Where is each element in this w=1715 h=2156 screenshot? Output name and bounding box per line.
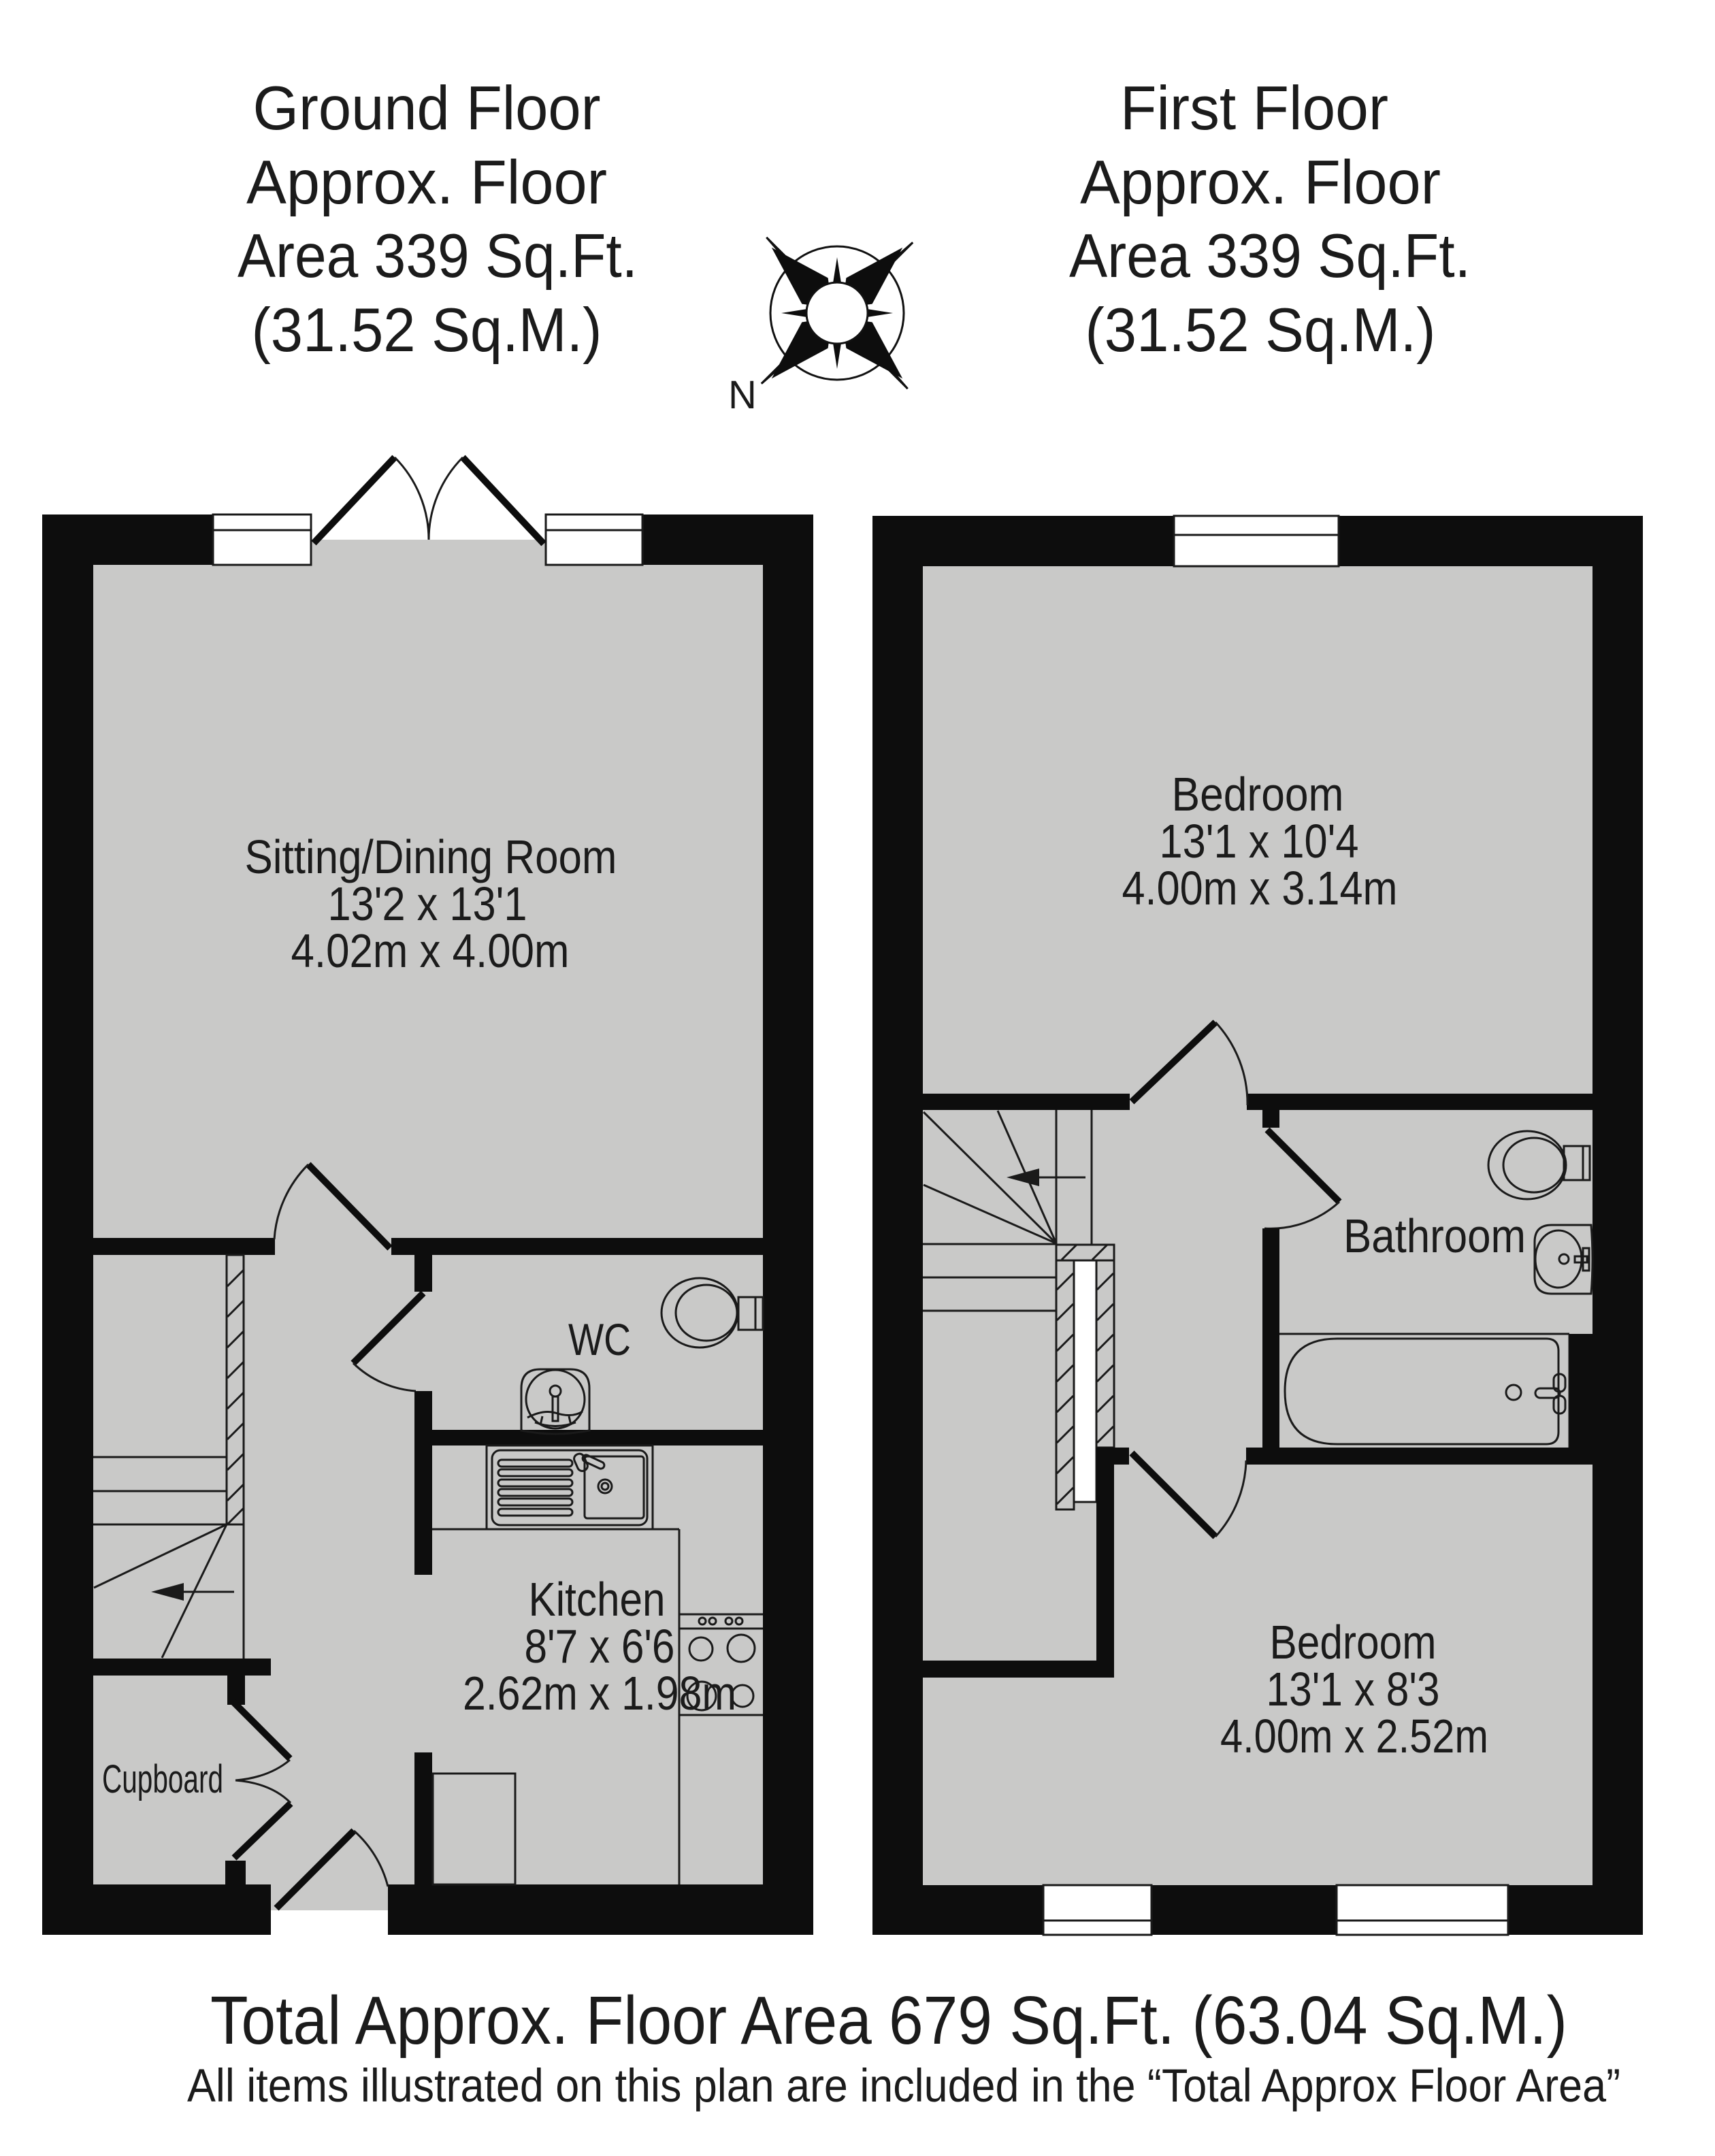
svg-text:Cupboard: Cupboard (102, 1757, 223, 1801)
svg-text:(31.52 Sq.M.): (31.52 Sq.M.) (252, 296, 602, 365)
svg-text:Bathroom: Bathroom (1343, 1209, 1526, 1262)
svg-text:13'1 x 8'3: 13'1 x 8'3 (1267, 1663, 1440, 1716)
svg-text:Area 339 Sq.Ft.: Area 339 Sq.Ft. (238, 222, 638, 291)
svg-text:Bedroom: Bedroom (1270, 1616, 1437, 1669)
svg-text:Bedroom: Bedroom (1172, 768, 1344, 821)
svg-text:Area 339 Sq.Ft.: Area 339 Sq.Ft. (1069, 222, 1471, 291)
svg-text:4.00m x 2.52m: 4.00m x 2.52m (1220, 1710, 1488, 1763)
svg-text:4.00m x 3.14m: 4.00m x 3.14m (1122, 862, 1398, 915)
svg-text:13'2 x 13'1: 13'2 x 13'1 (328, 877, 527, 930)
svg-text:2.62m x 1.98m: 2.62m x 1.98m (463, 1667, 736, 1720)
svg-text:13'1 x 10'4: 13'1 x 10'4 (1160, 815, 1359, 868)
svg-text:WC: WC (568, 1314, 631, 1365)
svg-text:(31.52 Sq.M.): (31.52 Sq.M.) (1085, 296, 1436, 365)
svg-text:All items illustrated on this: All items illustrated on this plan are i… (187, 2059, 1620, 2112)
svg-text:Approx. Floor: Approx. Floor (246, 148, 607, 217)
svg-text:4.02m x 4.00m: 4.02m x 4.00m (291, 924, 570, 977)
svg-text:N: N (728, 373, 757, 417)
svg-text:8'7 x 6'6: 8'7 x 6'6 (525, 1620, 675, 1673)
svg-text:Approx. Floor: Approx. Floor (1080, 148, 1441, 217)
svg-text:Ground Floor: Ground Floor (253, 74, 601, 143)
svg-text:Total Approx. Floor Area 679 S: Total Approx. Floor Area 679 Sq.Ft. (63.… (210, 1982, 1567, 2059)
svg-text:Sitting/Dining Room: Sitting/Dining Room (245, 830, 617, 883)
svg-text:First Floor: First Floor (1120, 74, 1388, 143)
svg-text:Kitchen: Kitchen (529, 1573, 666, 1626)
